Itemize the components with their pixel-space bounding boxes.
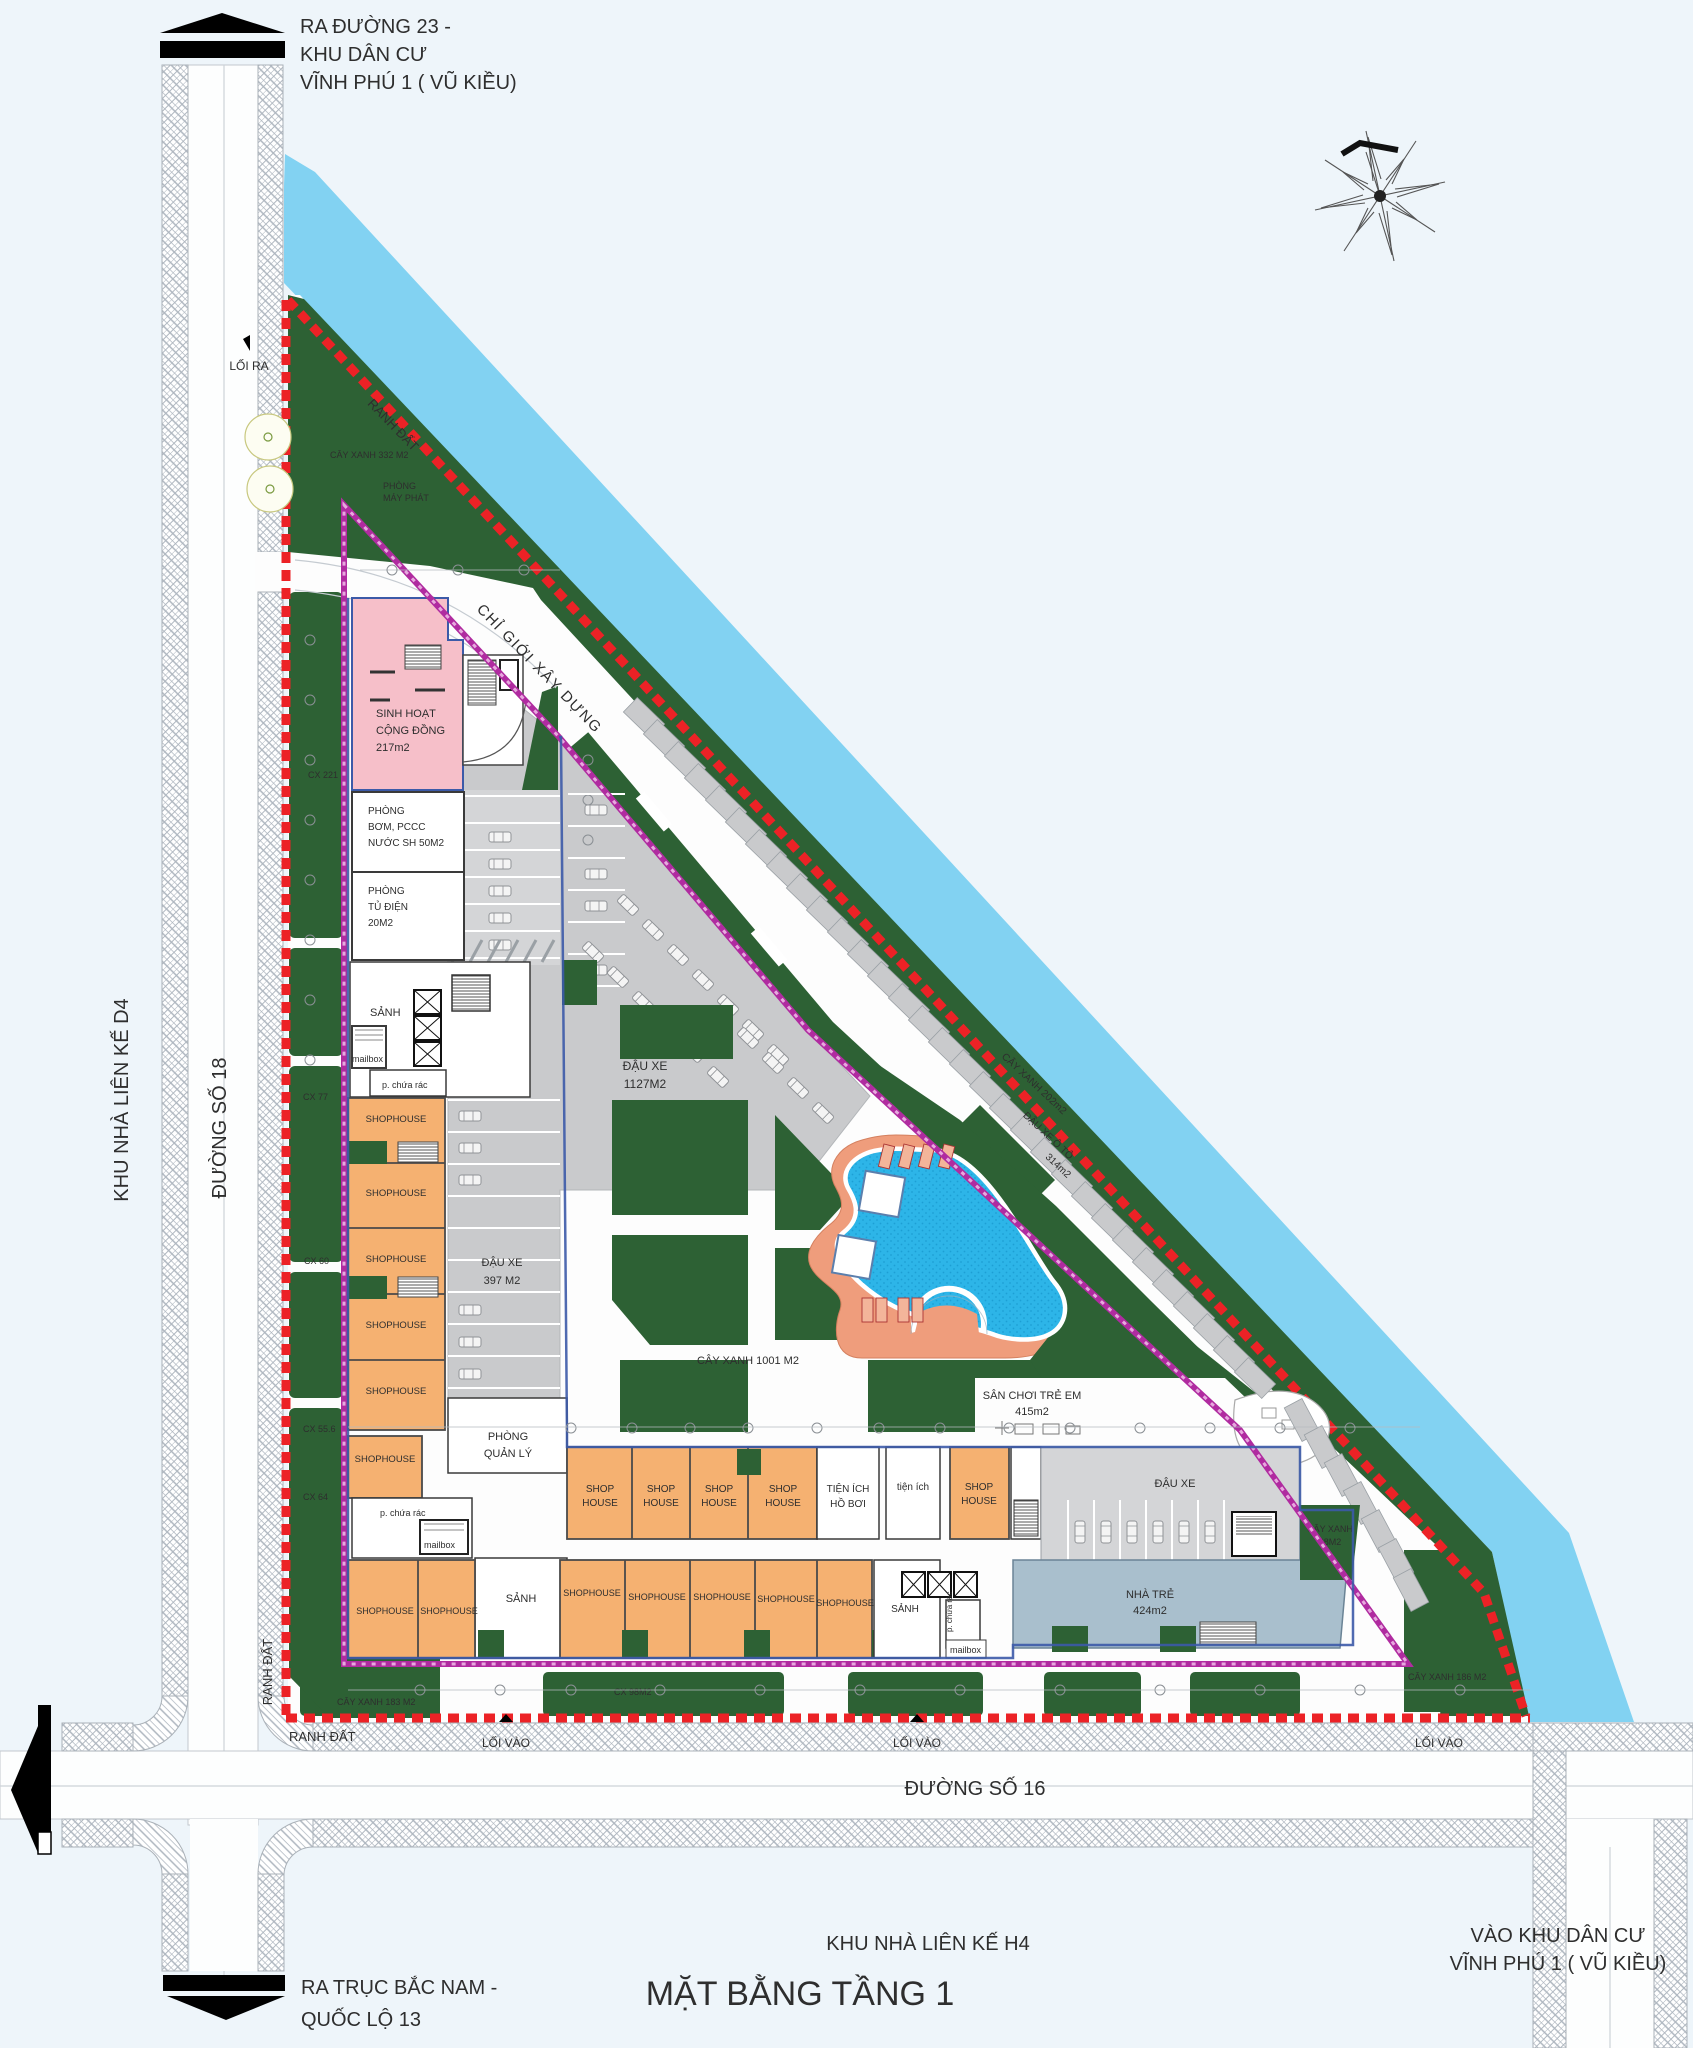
svg-text:SHOPHOUSE: SHOPHOUSE <box>757 1594 815 1604</box>
svg-text:mailbox: mailbox <box>352 1054 384 1064</box>
svg-text:SHOPHOUSE: SHOPHOUSE <box>563 1588 621 1598</box>
svg-text:SHOP: SHOP <box>965 1482 994 1493</box>
svg-text:NƯỚC SH 50M2: NƯỚC SH 50M2 <box>368 836 444 849</box>
svg-text:CX 64: CX 64 <box>303 1492 328 1502</box>
svg-text:NHÀ TRẺ: NHÀ TRẺ <box>1126 1588 1174 1601</box>
svg-text:HOUSE: HOUSE <box>765 1498 801 1509</box>
svg-text:SẢNH: SẢNH <box>891 1602 919 1615</box>
svg-text:MẶT BẰNG TẦNG 1: MẶT BẰNG TẦNG 1 <box>646 1975 955 2013</box>
svg-text:RA TRỤC BẮC NAM -: RA TRỤC BẮC NAM - <box>301 1975 497 1999</box>
svg-text:CX 60: CX 60 <box>304 1256 329 1266</box>
svg-text:SHOPHOUSE: SHOPHOUSE <box>355 1454 416 1465</box>
svg-text:RA ĐƯỜNG 23 -: RA ĐƯỜNG 23 - <box>300 15 451 38</box>
svg-text:LỐI VÀO: LỐI VÀO <box>893 1735 941 1750</box>
svg-text:SẢNH: SẢNH <box>506 1592 537 1605</box>
svg-text:p. chứa rác: p. chứa rác <box>945 1592 954 1632</box>
svg-text:ĐƯỜNG SỐ 16: ĐƯỜNG SỐ 16 <box>905 1776 1046 1800</box>
svg-text:PHÒNG: PHÒNG <box>383 481 416 491</box>
svg-text:CÂY XANH 183 M2: CÂY XANH 183 M2 <box>337 1697 415 1707</box>
svg-text:RANH ĐẤT: RANH ĐẤT <box>289 1729 356 1744</box>
svg-text:PHÒNG: PHÒNG <box>368 804 405 817</box>
svg-text:ĐƯỜNG SỐ 18: ĐƯỜNG SỐ 18 <box>207 1058 231 1199</box>
svg-text:217m2: 217m2 <box>376 742 410 754</box>
svg-text:mailbox: mailbox <box>424 1540 456 1550</box>
svg-text:SHOPHOUSE: SHOPHOUSE <box>356 1606 414 1616</box>
svg-text:LỐI RA: LỐI RA <box>229 358 268 373</box>
svg-text:20M2: 20M2 <box>368 918 393 929</box>
svg-text:SHOPHOUSE: SHOPHOUSE <box>366 1188 427 1199</box>
svg-text:CÂY XANH 186 M2: CÂY XANH 186 M2 <box>1408 1672 1486 1682</box>
svg-text:SHOP: SHOP <box>586 1484 615 1495</box>
svg-text:LỐI VÀO: LỐI VÀO <box>482 1735 530 1750</box>
svg-text:mailbox: mailbox <box>950 1645 982 1655</box>
svg-text:RANH ĐẤT: RANH ĐẤT <box>260 1639 275 1706</box>
svg-text:SHOP: SHOP <box>705 1484 734 1495</box>
svg-text:SHOPHOUSE: SHOPHOUSE <box>816 1598 874 1608</box>
svg-text:1127M2: 1127M2 <box>624 1077 667 1091</box>
svg-text:SHOPHOUSE: SHOPHOUSE <box>366 1114 427 1125</box>
svg-text:CX 221: CX 221 <box>308 770 338 780</box>
svg-text:SHOPHOUSE: SHOPHOUSE <box>366 1254 427 1265</box>
svg-text:CX 77: CX 77 <box>303 1092 328 1102</box>
svg-text:SINH HOẠT: SINH HOẠT <box>376 708 436 720</box>
svg-text:VĨNH PHÚ 1 ( VŨ KIỀU): VĨNH PHÚ 1 ( VŨ KIỀU) <box>1450 1951 1667 1975</box>
svg-text:SHOPHOUSE: SHOPHOUSE <box>366 1320 427 1331</box>
svg-text:p. chứa rác: p. chứa rác <box>380 1508 426 1518</box>
svg-text:HOUSE: HOUSE <box>701 1498 737 1509</box>
svg-text:CX 55.6: CX 55.6 <box>303 1424 336 1434</box>
svg-text:TỦ ĐIỆN: TỦ ĐIỆN <box>368 900 408 913</box>
svg-text:SHOPHOUSE: SHOPHOUSE <box>693 1592 751 1602</box>
svg-text:HOUSE: HOUSE <box>582 1498 618 1509</box>
svg-text:HOUSE: HOUSE <box>643 1498 679 1509</box>
svg-text:ĐẬU XE: ĐẬU XE <box>1155 1477 1196 1490</box>
svg-text:VĨNH PHÚ 1 ( VŨ KIỀU): VĨNH PHÚ 1 ( VŨ KIỀU) <box>300 70 517 94</box>
svg-text:SHOPHOUSE: SHOPHOUSE <box>628 1592 686 1602</box>
svg-text:ĐẬU XE: ĐẬU XE <box>482 1256 523 1269</box>
svg-text:PHÒNG: PHÒNG <box>488 1430 528 1443</box>
svg-text:415m2: 415m2 <box>1015 1406 1049 1418</box>
svg-text:KHU NHÀ LIÊN KẾ D4: KHU NHÀ LIÊN KẾ D4 <box>110 998 133 1201</box>
svg-text:CÂY XANH 332 M2: CÂY XANH 332 M2 <box>330 450 408 460</box>
svg-text:SẢNH: SẢNH <box>370 1006 401 1019</box>
svg-text:SHOP: SHOP <box>647 1484 676 1495</box>
svg-text:SHOPHOUSE: SHOPHOUSE <box>420 1606 478 1616</box>
svg-text:HỒ BƠI: HỒ BƠI <box>830 1497 866 1510</box>
svg-text:VÀO KHU DÂN CƯ: VÀO KHU DÂN CƯ <box>1471 1924 1646 1947</box>
svg-text:CX 98M2: CX 98M2 <box>614 1687 652 1697</box>
svg-text:QUẢN LÝ: QUẢN LÝ <box>484 1447 533 1460</box>
svg-text:MÁY PHÁT: MÁY PHÁT <box>383 493 429 503</box>
svg-text:tiện ích: tiện ích <box>897 1482 929 1493</box>
svg-text:KHU DÂN CƯ: KHU DÂN CƯ <box>300 43 427 66</box>
svg-text:397 M2: 397 M2 <box>484 1275 521 1287</box>
svg-text:SHOPHOUSE: SHOPHOUSE <box>366 1386 427 1397</box>
svg-text:HOUSE: HOUSE <box>961 1496 997 1507</box>
svg-text:ĐẬU XE: ĐẬU XE <box>623 1058 668 1073</box>
svg-text:PHÒNG: PHÒNG <box>368 884 405 897</box>
svg-text:SÂN CHƠI TRẺ EM: SÂN CHƠI TRẺ EM <box>983 1389 1081 1402</box>
svg-text:p. chứa rác: p. chứa rác <box>382 1080 428 1090</box>
svg-text:LỐI VÀO: LỐI VÀO <box>1415 1735 1463 1750</box>
svg-text:CÂY XANH 1001 M2: CÂY XANH 1001 M2 <box>697 1354 799 1367</box>
svg-text:CỘNG ĐỒNG: CỘNG ĐỒNG <box>376 724 445 737</box>
svg-text:KHU NHÀ LIÊN KẾ H4: KHU NHÀ LIÊN KẾ H4 <box>826 1932 1029 1955</box>
svg-text:SHOP: SHOP <box>769 1484 798 1495</box>
svg-text:TIỆN ÍCH: TIỆN ÍCH <box>827 1482 870 1495</box>
svg-text:424m2: 424m2 <box>1133 1605 1167 1617</box>
svg-text:QUỐC LỘ 13: QUỐC LỘ 13 <box>301 2007 421 2031</box>
svg-text:BƠM, PCCC: BƠM, PCCC <box>368 822 425 833</box>
